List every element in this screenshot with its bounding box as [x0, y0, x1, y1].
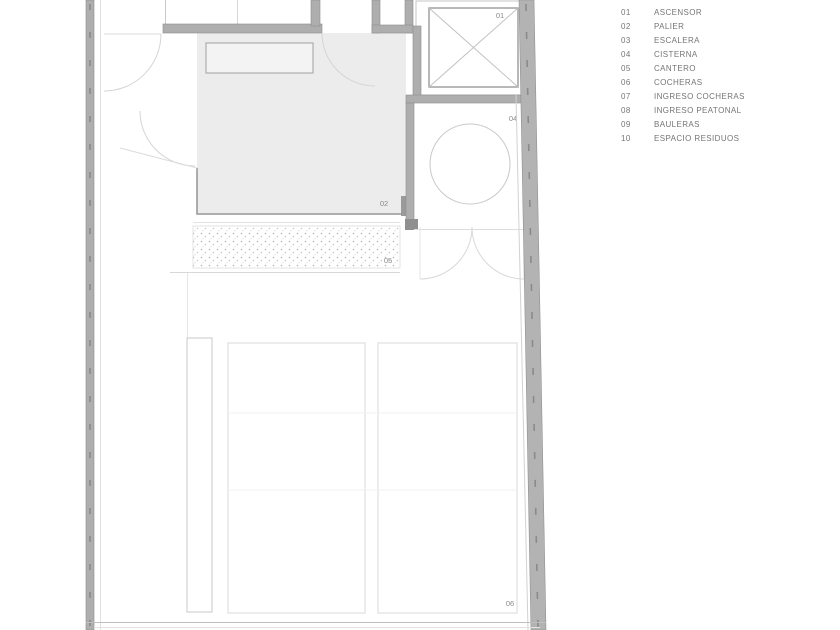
legend-row-cocheras: 06 COCHERAS — [621, 76, 821, 90]
legend-number: 10 — [621, 132, 654, 146]
legend-number: 09 — [621, 118, 654, 132]
door-swing-arc-right-leaf — [472, 227, 524, 279]
legend-label: INGRESO COCHERAS — [654, 90, 821, 104]
legend-number: 02 — [621, 20, 654, 34]
legend-label: PALIER — [654, 20, 821, 34]
right-exterior-wall — [516, 0, 546, 630]
cistern-left-wall — [406, 103, 414, 227]
legend-label: BAULERAS — [654, 118, 821, 132]
legend-number: 04 — [621, 48, 654, 62]
duct-wall-bottom — [372, 25, 413, 33]
legend-number: 03 — [621, 34, 654, 48]
legend-label: COCHERAS — [654, 76, 821, 90]
label-ascensor: 01 — [496, 11, 504, 20]
top-interior-wall — [163, 24, 322, 33]
cocheras-garage: 06 — [187, 273, 517, 613]
legend-row-cantero: 05 CANTERO — [621, 62, 821, 76]
legend-row-ingreso-cocheras: 07 INGRESO COCHERAS — [621, 90, 821, 104]
palier-landing-rect — [206, 43, 313, 73]
cistern-tank-circle — [430, 124, 510, 204]
legend-row-bauleras: 09 BAULERAS — [621, 118, 821, 132]
cantero-planter: 05 — [170, 223, 400, 273]
legend-row-escalera: 03 ESCALERA — [621, 34, 821, 48]
door-swing-arc-left-leaf — [420, 227, 472, 279]
legend-label: ASCENSOR — [654, 6, 821, 20]
cistern-top-wall — [406, 95, 533, 103]
door-swing-arc-top-left — [104, 34, 161, 91]
legend-number: 07 — [621, 90, 654, 104]
entry-double-door — [420, 227, 524, 279]
cantero-stipple-area — [193, 226, 400, 268]
duct-shaft — [372, 0, 413, 33]
floorplan-page: 01 04 02 05 — [0, 0, 840, 630]
label-cocheras: 06 — [506, 599, 514, 608]
legend-number: 01 — [621, 6, 654, 20]
top-interior-wall-stub — [311, 0, 320, 26]
cistern-wall-end-cap — [405, 219, 418, 230]
legend-row-cisterna: 04 CISTERNA — [621, 48, 821, 62]
legend-label: CISTERNA — [654, 48, 821, 62]
legend: 01 ASCENSOR 02 PALIER 03 ESCALERA 04 CIS… — [621, 6, 821, 146]
legend-row-espacio-residuos: 10 ESPACIO RESIDUOS — [621, 132, 821, 146]
garage-column-strip — [187, 338, 212, 612]
legend-row-palier: 02 PALIER — [621, 20, 821, 34]
label-cantero: 05 — [384, 256, 392, 265]
label-palier: 02 — [380, 199, 388, 208]
ramp-edge-line — [120, 148, 197, 168]
legend-label: CANTERO — [654, 62, 821, 76]
legend-row-ascensor: 01 ASCENSOR — [621, 6, 821, 20]
cistern-room: 04 — [405, 95, 533, 230]
legend-number: 05 — [621, 62, 654, 76]
door-swing-arc-mid-left — [140, 111, 195, 166]
elevator-room: 01 — [413, 0, 533, 98]
legend-label: ESPACIO RESIDUOS — [654, 132, 821, 146]
elevator-left-wall — [413, 26, 421, 98]
parking-bay-2 — [378, 343, 517, 613]
label-cisterna: 04 — [509, 114, 517, 123]
legend-number: 08 — [621, 104, 654, 118]
legend-label: INGRESO PEATONAL — [654, 104, 821, 118]
parking-bay-1 — [228, 343, 365, 613]
legend-row-ingreso-peatonal: 08 INGRESO PEATONAL — [621, 104, 821, 118]
legend-label: ESCALERA — [654, 34, 821, 48]
legend-number: 06 — [621, 76, 654, 90]
